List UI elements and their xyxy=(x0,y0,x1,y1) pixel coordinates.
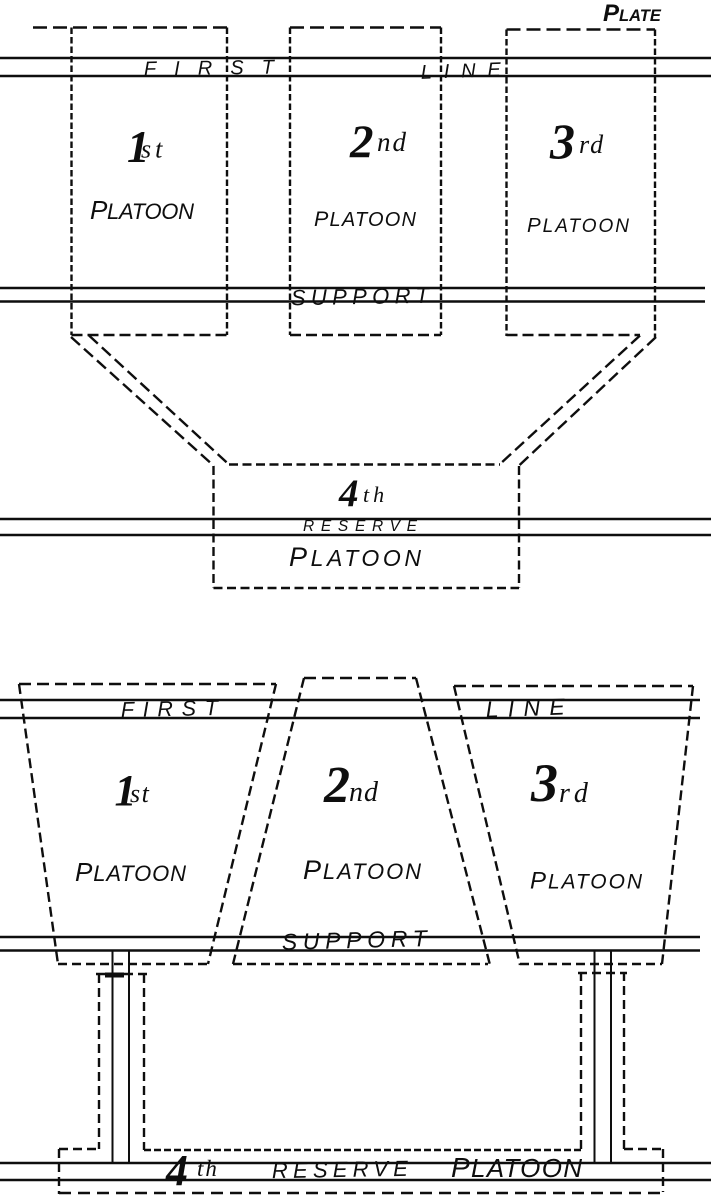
svg-text:PLATOON: PLATOON xyxy=(527,214,629,237)
svg-text:LINE: LINE xyxy=(485,693,566,722)
svg-text:PLATOON: PLATOON xyxy=(75,857,186,887)
svg-text:SUPPORT: SUPPORT xyxy=(291,283,431,310)
svg-text:RESERVE: RESERVE xyxy=(303,518,418,535)
svg-text:SUPPORT: SUPPORT xyxy=(281,925,429,955)
svg-text:2: 2 xyxy=(323,757,350,814)
svg-text:3: 3 xyxy=(549,113,575,169)
svg-text:PLATOON: PLATOON xyxy=(530,868,643,895)
svg-text:rd: rd xyxy=(579,130,605,159)
svg-text:RESERVE: RESERVE xyxy=(272,1156,409,1183)
svg-text:st: st xyxy=(130,779,150,808)
svg-text:2: 2 xyxy=(349,116,374,168)
svg-text:nd: nd xyxy=(377,127,408,157)
svg-text:th: th xyxy=(197,1156,219,1181)
svg-text:rd: rd xyxy=(559,778,593,809)
svg-text:th: th xyxy=(363,482,388,507)
svg-text:nd: nd xyxy=(349,777,379,808)
svg-text:PLATOON: PLATOON xyxy=(303,855,421,885)
svg-text:LINE: LINE xyxy=(420,59,501,84)
svg-text:PLATOON: PLATOON xyxy=(314,207,417,231)
svg-text:PLATOON: PLATOON xyxy=(289,542,421,572)
svg-text:PLATE: PLATE xyxy=(603,0,662,27)
svg-text:4: 4 xyxy=(338,472,359,515)
svg-text:st: st xyxy=(141,135,166,164)
svg-text:PLATOON: PLATOON xyxy=(90,195,194,225)
svg-text:PLATOON: PLATOON xyxy=(451,1152,582,1183)
svg-text:4: 4 xyxy=(165,1146,188,1195)
svg-text:3: 3 xyxy=(530,753,558,813)
